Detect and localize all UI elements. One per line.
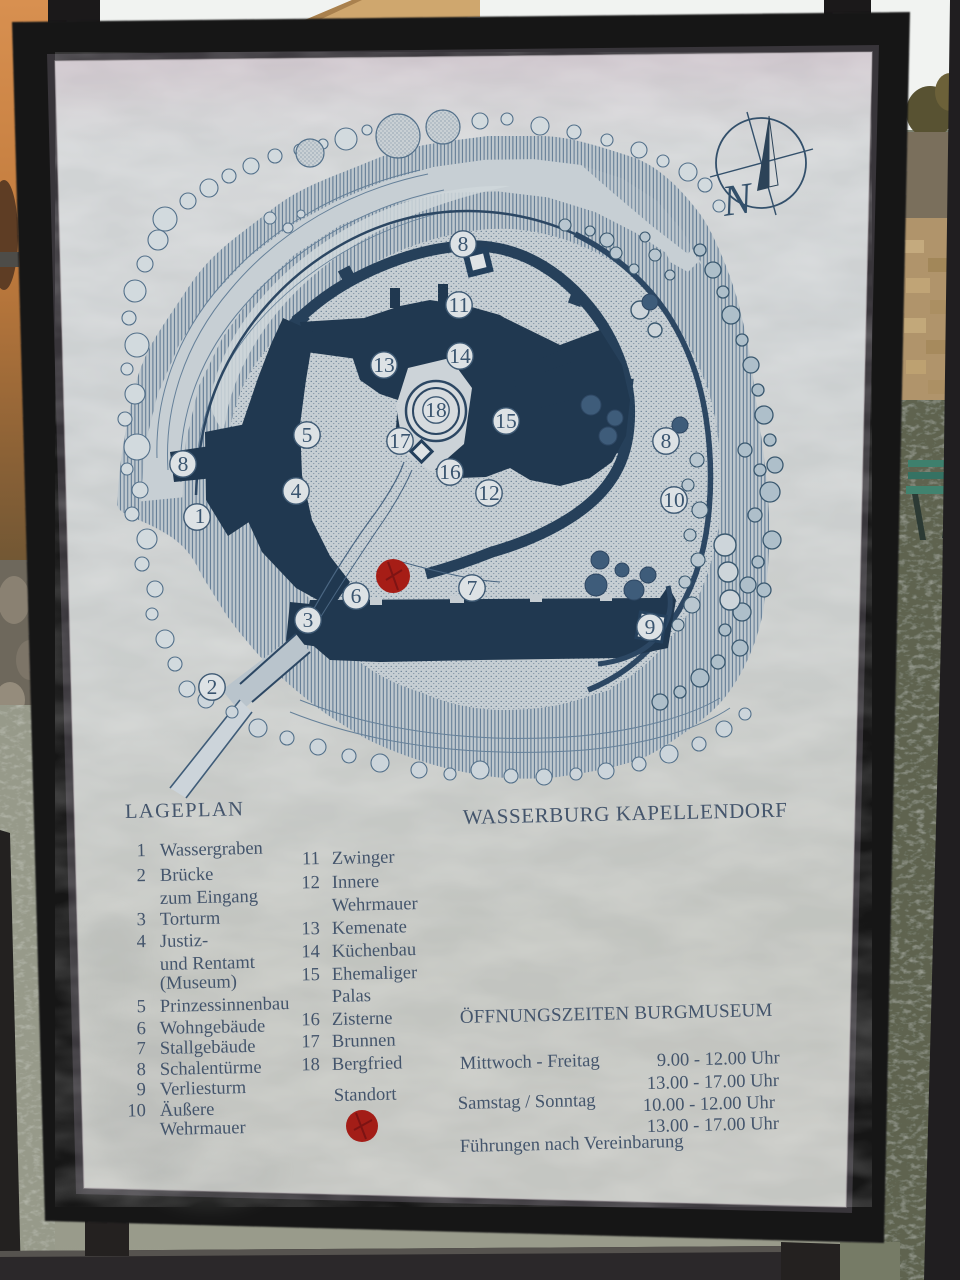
svg-text:9: 9 (645, 615, 656, 639)
svg-text:8: 8 (661, 429, 672, 453)
svg-text:16: 16 (301, 1010, 320, 1030)
svg-text:2: 2 (207, 675, 218, 699)
svg-text:18: 18 (425, 398, 447, 422)
svg-text:Äußere: Äußere (160, 1099, 215, 1121)
svg-text:Mittwoch - Freitag: Mittwoch - Freitag (460, 1051, 600, 1074)
svg-text:Wohngebäude: Wohngebäude (160, 1017, 266, 1039)
svg-text:14: 14 (301, 942, 320, 962)
svg-text:Schalentürme: Schalentürme (160, 1058, 262, 1080)
svg-text:10: 10 (663, 488, 685, 512)
svg-text:Brunnen: Brunnen (332, 1031, 396, 1052)
svg-text:Zisterne: Zisterne (332, 1009, 393, 1030)
svg-text:7: 7 (136, 1039, 146, 1059)
svg-text:15: 15 (495, 409, 517, 433)
svg-text:Standort: Standort (334, 1085, 398, 1106)
svg-text:13.00 - 17.00 Uhr: 13.00 - 17.00 Uhr (647, 1071, 779, 1094)
svg-text:8: 8 (458, 232, 469, 256)
svg-text:7: 7 (467, 576, 478, 600)
svg-text:4: 4 (291, 479, 302, 503)
svg-text:16: 16 (439, 460, 461, 484)
svg-text:5: 5 (302, 423, 313, 447)
svg-text:Wassergraben: Wassergraben (160, 839, 263, 861)
svg-text:4: 4 (136, 932, 146, 952)
svg-text:10: 10 (127, 1101, 146, 1121)
svg-text:Küchenbau: Küchenbau (332, 940, 417, 962)
svg-text:9.00 - 12.00 Uhr: 9.00 - 12.00 Uhr (657, 1048, 780, 1071)
svg-text:Ehemaliger: Ehemaliger (332, 963, 418, 985)
svg-text:3: 3 (136, 910, 146, 930)
svg-text:LAGEPLAN: LAGEPLAN (125, 798, 245, 823)
svg-text:1: 1 (136, 841, 146, 861)
svg-text:3: 3 (303, 608, 314, 632)
svg-text:14: 14 (449, 344, 471, 368)
svg-text:8: 8 (136, 1060, 146, 1080)
svg-text:6: 6 (136, 1019, 146, 1039)
svg-text:1: 1 (195, 504, 206, 528)
svg-text:11: 11 (449, 293, 470, 317)
svg-text:12: 12 (478, 481, 500, 505)
svg-text:13: 13 (373, 353, 395, 377)
svg-text:11: 11 (302, 849, 320, 869)
svg-text:Justiz-: Justiz- (160, 931, 209, 952)
svg-text:(Museum): (Museum) (160, 972, 238, 994)
svg-text:2: 2 (136, 866, 146, 886)
svg-text:Palas: Palas (332, 986, 372, 1007)
svg-text:9: 9 (136, 1080, 146, 1100)
svg-text:und Rentamt: und Rentamt (160, 953, 256, 975)
svg-text:Zwinger: Zwinger (332, 848, 395, 869)
svg-text:17: 17 (301, 1032, 320, 1052)
svg-text:Innere: Innere (332, 872, 380, 893)
svg-text:Brücke: Brücke (160, 865, 214, 886)
svg-text:zum Eingang: zum Eingang (160, 887, 259, 909)
svg-text:12: 12 (301, 873, 320, 893)
svg-text:Wehrmauer: Wehrmauer (332, 894, 418, 916)
svg-text:Torturm: Torturm (160, 909, 221, 930)
svg-text:Prinzessinnenbau: Prinzessinnenbau (160, 994, 290, 1017)
svg-text:Stallgebäude: Stallgebäude (160, 1037, 256, 1059)
svg-text:Wehrmauer: Wehrmauer (160, 1118, 246, 1140)
svg-text:Verliesturm: Verliesturm (160, 1078, 247, 1100)
svg-text:Kemenate: Kemenate (332, 917, 407, 939)
svg-text:5: 5 (136, 997, 146, 1017)
svg-text:13: 13 (301, 919, 320, 939)
svg-text:8: 8 (178, 452, 189, 476)
svg-text:Bergfried: Bergfried (332, 1053, 404, 1075)
svg-text:Samstag / Sonntag: Samstag / Sonntag (458, 1091, 596, 1114)
svg-text:18: 18 (301, 1055, 320, 1075)
svg-text:17: 17 (389, 429, 411, 453)
svg-text:15: 15 (301, 965, 320, 985)
svg-text:6: 6 (351, 584, 362, 608)
svg-text:10.00 - 12.00 Uhr: 10.00 - 12.00 Uhr (643, 1093, 775, 1116)
